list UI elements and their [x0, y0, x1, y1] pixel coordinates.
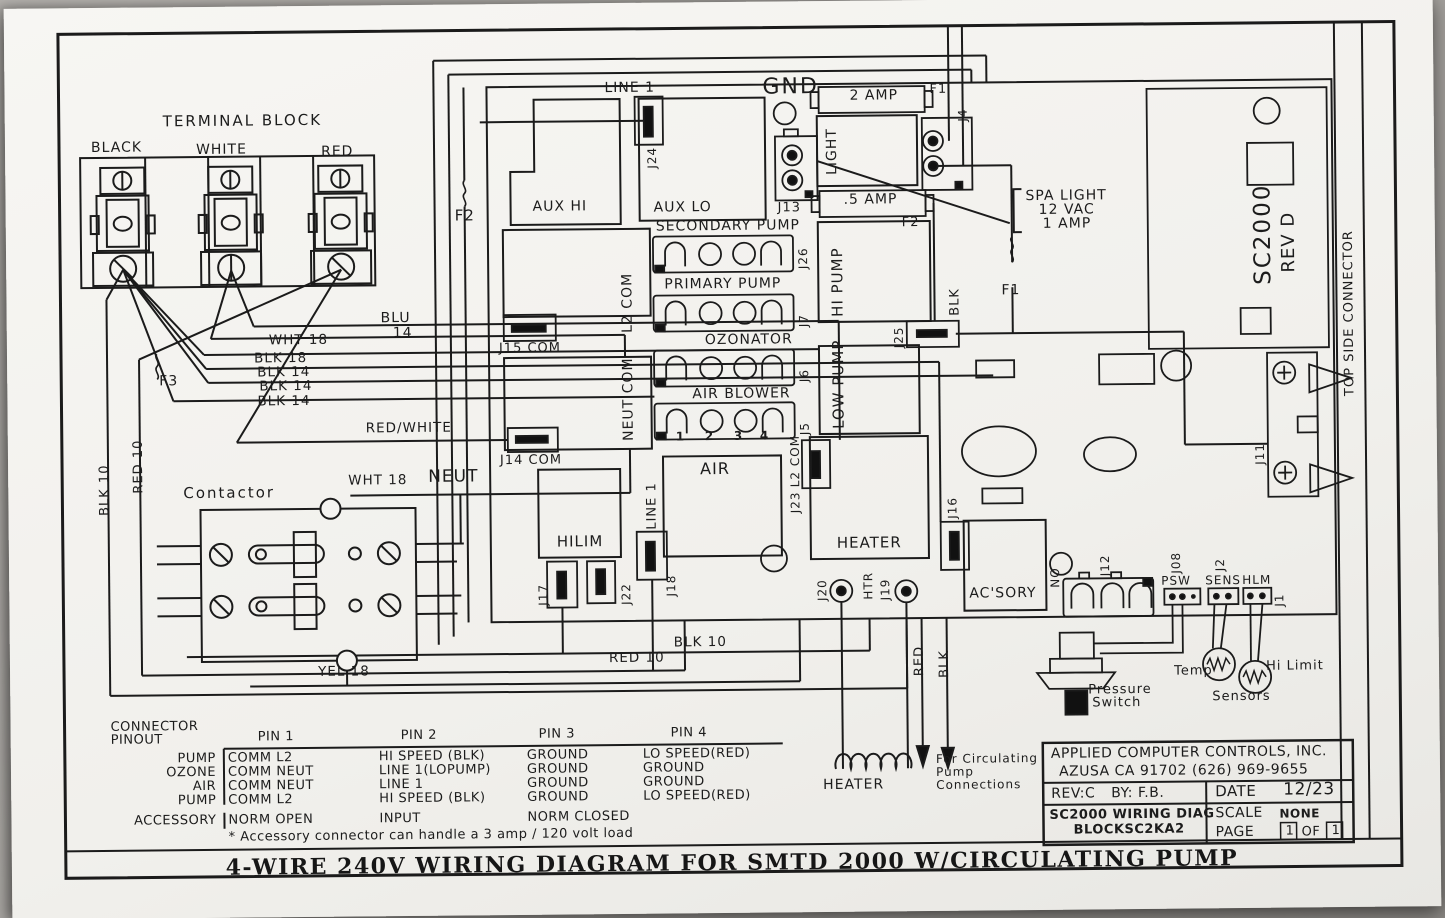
low-pump-label: LOW PUMP [831, 340, 847, 429]
j2-label: J2 [1214, 558, 1226, 571]
pinout-cell: LINE 1 [379, 778, 424, 792]
acsory-label: AC'SORY [969, 586, 1036, 601]
page-of-label: OF [1302, 825, 1321, 839]
blu-gauge-label: 14 [393, 326, 413, 341]
j26-connector [653, 235, 793, 272]
air-blower-label: AIR BLOWER [692, 386, 790, 402]
aux-lo-label: AUX LO [654, 200, 712, 215]
htr-label: HTR [862, 572, 874, 600]
red10-bottom-label: RED 10 [609, 651, 665, 666]
blu-wire-label: BLU [381, 311, 411, 326]
aux-hi-label: AUX HI [533, 199, 588, 214]
gnd-pad [774, 102, 796, 124]
blk10-bottom-label: BLK 10 [674, 635, 727, 650]
connectors [652, 97, 1354, 621]
wht18-wire-label: WHT 18 [269, 333, 328, 348]
rev-field: REV:C [1051, 786, 1095, 801]
pinout-cell: INPUT [379, 812, 420, 826]
breaker-red [308, 165, 373, 284]
j26-label: J26 [797, 247, 809, 269]
switch-label: Switch [1092, 696, 1141, 710]
j1-label: J1 [1273, 593, 1285, 606]
j13-label: J13 [778, 201, 802, 215]
hlm-label: HLM [1242, 574, 1271, 587]
pinout-col-1: PIN 1 [258, 730, 294, 744]
secondary-pump-label: SECONDARY PUMP [656, 218, 800, 234]
blk14-wire-label-2: BLK 14 [259, 379, 312, 394]
terminal-white-label: WHITE [196, 143, 247, 158]
hlm-connector [1243, 588, 1271, 604]
j14-com-label: J14 COM [500, 454, 562, 468]
pinout-col-4: PIN 4 [671, 726, 707, 740]
neut-label: NEUT [428, 468, 478, 486]
date-label: DATE [1215, 784, 1256, 800]
pinout-cell: HI SPEED (BLK) [379, 791, 485, 806]
pinout-header-2: PINOUT [111, 733, 163, 747]
line1-vert-label: LINE 1 [645, 482, 658, 530]
pinout-row-name: PUMP [116, 794, 216, 809]
j23-fuse [802, 440, 830, 488]
blk-vert-label: BLK [938, 650, 951, 678]
temp-label: Temp [1174, 664, 1213, 678]
j15-com-label: J15 COM [499, 342, 561, 356]
no-label: NO [1049, 567, 1061, 588]
fuse-2amp-label: 2 AMP [849, 88, 898, 103]
line1-top-label: LINE 1 [604, 81, 655, 96]
j08-label: J08 [1170, 552, 1182, 574]
terminal-black-label: BLACK [91, 141, 142, 156]
j14-fuse [508, 428, 558, 452]
primary-pump-label: PRIMARY PUMP [664, 276, 781, 292]
blk10-left-label: BLK 10 [98, 464, 111, 515]
red-white-wire-label: RED/WHITE [366, 421, 452, 436]
doc-name-2: BLOCKSC2KA2 [1074, 823, 1185, 838]
wiring-diagram-sheet: TERMINAL BLOCK BLACK WHITE RED LINE 1 J2… [4, 0, 1442, 918]
j16-label: J16 [946, 497, 958, 519]
heater-block-label: HEATER [837, 535, 902, 551]
j25-fuse [907, 321, 959, 347]
sens-connector [1208, 588, 1238, 604]
sens-label: SENS [1205, 574, 1241, 587]
pin-3-label: 3 [734, 430, 743, 443]
blk14-wire-label-3: BLK 14 [257, 394, 310, 409]
j11-connector [1267, 352, 1352, 497]
pinout-cell: LINE 1(LOPUMP) [379, 763, 491, 778]
j5-label: J5 [799, 422, 811, 435]
company-address: AZUSA CA 91702 (626) 969-9655 [1059, 762, 1309, 779]
pin-4-label: 4 [760, 430, 769, 443]
j13-connector [775, 129, 818, 200]
pinout-cell: NORM OPEN [228, 813, 313, 827]
circulating-note-3: Connections [936, 778, 1021, 791]
heater-coil-graphic [834, 601, 954, 769]
neut-com-label: NEUT COM [621, 357, 636, 441]
terminal-red-label: RED [321, 145, 353, 160]
page-label: PAGE [1216, 825, 1255, 840]
photo-background: TERMINAL BLOCK BLACK WHITE RED LINE 1 J2… [0, 0, 1445, 918]
ozonator-label: OZONATOR [705, 332, 793, 348]
circulating-note-2: Pump [936, 766, 974, 779]
j22-fuse [587, 561, 615, 603]
f2-right-label: F2 [902, 216, 920, 230]
pinout-cell: COMM NEUT [228, 779, 314, 793]
f3-label: F3 [159, 374, 178, 389]
hi-limit-label: Hi Limit [1266, 659, 1324, 673]
page-number: 1 [1286, 825, 1295, 839]
yel18-wire-label: YEL 18 [318, 664, 370, 679]
pin-1-label: 1 [676, 430, 685, 443]
p inout-row-name: ACCESSORY [116, 814, 216, 829]
by-field: BY: F.B. [1111, 786, 1164, 801]
l2-com-label: L2 COM [620, 273, 635, 333]
light-label: LIGHT [825, 128, 839, 175]
hilim-label: HILIM [557, 534, 604, 550]
sensors-label: Sensors [1212, 690, 1270, 704]
gnd-label: GND [762, 75, 819, 99]
j6-connector [654, 349, 794, 386]
j12-connector [1063, 572, 1153, 617]
j22-label: J22 [620, 583, 632, 605]
contactor-graphic [156, 497, 465, 672]
psw-connector [1164, 588, 1200, 604]
f1-mid-label: F1 [1001, 283, 1020, 298]
j23-label: J23 [789, 491, 801, 513]
doc-name-1: SC2000 WIRING DIAG [1049, 807, 1214, 822]
pin-2-label: 2 [705, 430, 714, 443]
j23-l2com-label: L2 COM [789, 435, 802, 487]
terminal-block-title: TERMINAL BLOCK [163, 113, 322, 130]
j11-label: J11 [1254, 443, 1266, 465]
pinout-cell: NORM CLOSED [527, 810, 630, 825]
hi-pump-label: HI PUMP [830, 247, 846, 317]
contactor-label: Contactor [183, 485, 275, 502]
j6-label: J6 [798, 369, 810, 382]
red-vert-label: RED [913, 646, 926, 676]
scale-label: SCALE [1215, 806, 1263, 821]
pinout-cell: COMM L2 [228, 793, 293, 807]
pinout-col-3: PIN 3 [539, 727, 575, 741]
j20-label: J20 [816, 579, 828, 601]
j7-connector [653, 294, 793, 331]
date-value: 12/23 [1283, 781, 1335, 799]
company-name: APPLIED COMPUTER CONTROLS, INC. [1051, 744, 1327, 761]
j12-label: J12 [1099, 554, 1111, 576]
blk-fuse-wire-label: BLK [948, 288, 961, 316]
f2-left-label: F2 [455, 208, 475, 224]
heater-coil-label: HEATER [823, 777, 884, 792]
terminal-block-graphic [80, 155, 375, 288]
pinout-cell: GROUND [527, 790, 589, 804]
air-block-label: AIR [700, 461, 730, 478]
spa-light-note-3: 1 AMP [1043, 216, 1092, 231]
j4-label: J4 [957, 108, 969, 121]
page-total: 1 [1332, 824, 1341, 838]
j19-label: J19 [879, 579, 891, 601]
fuse-half-amp-label: .5 AMP [843, 192, 897, 207]
red10-left-label: RED 10 [132, 440, 146, 494]
wht18-contactor-label: WHT 18 [348, 473, 407, 488]
psw-label: PSW [1161, 575, 1191, 588]
j15-fuse [504, 315, 556, 341]
j17-label: J17 [537, 584, 549, 606]
scale-value: NONE [1279, 807, 1320, 820]
rev-d-label: REV D [1280, 212, 1299, 273]
j18-label: J18 [665, 575, 677, 597]
top-side-connector-label: TOP SIDE CONNECTOR [1342, 230, 1357, 396]
pinout-col-2: PIN 2 [401, 729, 437, 743]
sc2000-label: SC2000 [1251, 183, 1275, 284]
circulating-note-1: For Circulating [936, 752, 1038, 766]
j4-connector [922, 118, 973, 190]
j7-label: J7 [798, 314, 810, 327]
f1-top-label: F1 [929, 83, 947, 97]
j24-label: J24 [646, 147, 658, 169]
j25-label: J25 [893, 326, 905, 348]
j17-fuse [547, 561, 577, 607]
j18-fuse [637, 532, 667, 580]
pinout-cell: LO SPEED(RED) [643, 789, 751, 804]
pinout-cell: LO SPEED(RED) [643, 747, 751, 762]
